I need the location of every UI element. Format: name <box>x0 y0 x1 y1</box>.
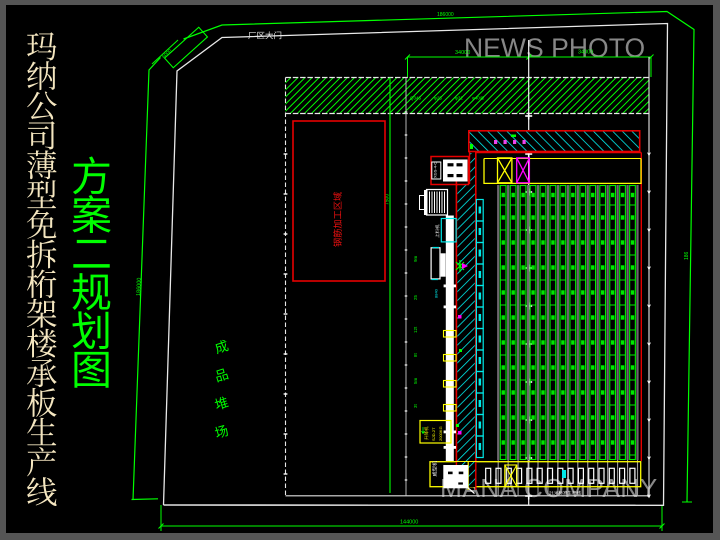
svg-text:34000: 34000 <box>455 50 470 56</box>
svg-text:144000: 144000 <box>400 520 418 526</box>
svg-text:5m: 5m <box>413 377 418 384</box>
svg-text:34000: 34000 <box>578 50 593 56</box>
svg-text:186: 186 <box>684 251 690 260</box>
svg-text:φ25: φ25 <box>434 96 442 101</box>
svg-text:25: 25 <box>413 294 418 300</box>
svg-text:21: 21 <box>549 491 555 496</box>
svg-text:186000: 186000 <box>437 12 454 18</box>
svg-text:XGS-4-C: XGS-4-C <box>433 162 438 178</box>
svg-text:186000: 186000 <box>136 278 143 297</box>
svg-text:Q345: Q345 <box>410 96 422 101</box>
svg-text:2000KG: 2000KG <box>438 426 443 441</box>
svg-text:φ32: φ32 <box>455 96 463 101</box>
svg-text:9m: 9m <box>413 255 418 262</box>
svg-text:8840: 8840 <box>434 288 439 298</box>
svg-text:φ40@: φ40@ <box>472 96 485 101</box>
svg-text:12t: 12t <box>413 326 418 333</box>
svg-text:SJD-2T: SJD-2T <box>431 427 436 441</box>
svg-text:NEWS PHOTO: NEWS PHOTO <box>464 33 645 63</box>
